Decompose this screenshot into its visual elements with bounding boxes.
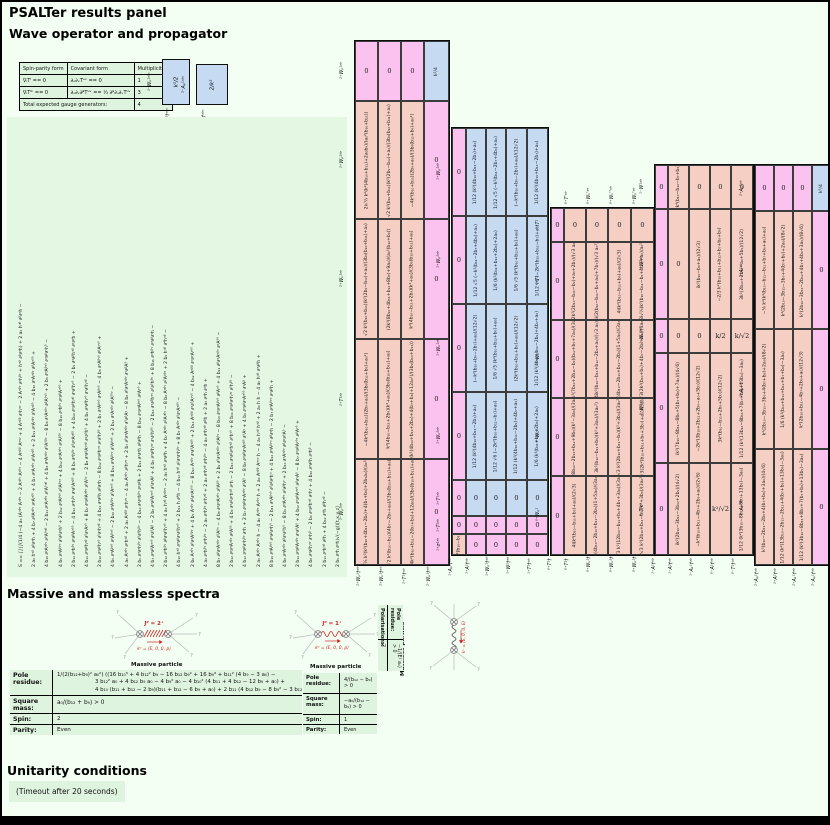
action-term-column: 2 b₁₁ ∂ᵅhᵅᵝ ∂ᵝh + 4 b₁₂ ∂ᵅh ∂ᵝhᵅᵝ − [323, 491, 328, 567]
matrix-row-label: ²⁺Wₖ¹ᵃᵇ [340, 270, 346, 287]
matrix-cell: 0 [689, 319, 710, 353]
parity-row: Parity: Even [303, 724, 377, 734]
matrix-cell: √2 k²(b₁₀+b₁₁)(k²(2b₉−b₁₂)+a₀)/(3b₉(b₁₀+… [378, 101, 401, 219]
matrix-cell: 0 [710, 165, 731, 209]
matrix-cell: 3k²(b₁₀−b₁₁+2b₉+5b₇)/(12√2) [710, 353, 731, 463]
matrix-cell-value: 1/12 √5 (−k²(b₁₁−2b₇+4b₉)+a₀) [494, 136, 499, 209]
matrix-row-label: ¹⁺Wₖ¹ᵃᵇ [437, 339, 443, 356]
matrix-cell: 8i√⅔(k²(b₁₀−b₁₁−b₉+4b₇)+a₀)/a₀² [631, 242, 654, 320]
matrix-cell-value: 1/6 (k²(b₁₀+b₁₁+b₁₂+b₇+b₈)−3a₀) [781, 351, 786, 428]
momentum-arrow [325, 640, 340, 643]
matrix-col-label: ⁰⁺Wₖ²† [610, 556, 616, 572]
matrix-row-label: ⁰⁺T¹ [536, 220, 542, 229]
matrix-cell: 0 [668, 319, 689, 353]
matrix-cell: k²(4b₁₀−2b₁₁+b₁₂−2b₉)(1+5a₀)/(3a₀²) [608, 320, 631, 398]
massive2-spectrum-table: Pole residue: 4/(b₁₂ − b₉) > 0 Square ma… [303, 673, 377, 734]
matrix-cell: k²(4b₁₀−2b₁₁+b₁₂−2b₉)(1+5a₀)/(3a₀²) [586, 476, 608, 555]
mini-matrix-value: k²/2 [173, 77, 179, 88]
matrix-cell-value: 0 [514, 541, 518, 549]
matrix-cell-value: 1/6 (k²(b₁₁+b₁₂+2b₉)+2a₀) [494, 230, 499, 291]
gauge-covariant-form: ∂ᵤ∂ᵥ∂ᵝTᵘᵛ == ⅓ ∂ᵝ∂ᵤ∂ᵥTᵘᵛ [67, 87, 134, 99]
momentum-label: kᵘ = (E, 0, 0, p) [137, 646, 171, 652]
matrix-cell-value: 0 [474, 494, 478, 502]
matrix-cell: (k²(4b₁₀+b₁₁+2b₉)+4(b₇+b₈)+12a₀²)/(3b₉(b… [401, 339, 424, 459]
matrix-cell-value: 0 [573, 221, 577, 229]
matrix-cell-value: ik²(2b₁₀−3b₁₁−3b₁₂+2b₉)/(4√2) [676, 473, 681, 544]
action-term-column: 2 b₁₀ ∂ᵅ∂ᵝhᵞᵟ ∂ᵟ∂ᵞhᵅᵝ + 4 b₁₁ ∂ᵅ∂ᵝh ∂ᵝ∂ᵅ… [98, 336, 103, 567]
svg-text:?: ? [373, 613, 376, 619]
matrix-cell-value: k²/4 [819, 184, 824, 193]
gauge-spin-parity-form: ∇ᵢTⁱ == 0 [20, 75, 68, 87]
matrix-row-label: ¹⁻W¹ᵃᵇ [640, 178, 646, 193]
matrix-cell: 0 [668, 209, 689, 319]
parity-value: Even [52, 725, 302, 735]
matrix-cell-value: 0 [676, 332, 680, 340]
timeout-message: (Timeout after 20 seconds) [9, 781, 125, 802]
matrix-cell: 4(2k²(2b₁₀−b₁₁−b₉)+a₀+2b₇)/(√3 a₀²) [564, 242, 586, 320]
mini-matrix-cell: 2/k² [196, 64, 228, 105]
matrix-cell: 0 [551, 208, 564, 242]
matrix-cell-value: 0 [494, 521, 498, 529]
matrix-cell-value: 2i√⅔ k²(k²(4b₁₀+b₁₁)+2a₀b₉)/(a₀²(b₁₀+b₁₁… [364, 111, 369, 209]
matrix-cell: 0 [551, 242, 564, 320]
matrix-cell-value: 0 [457, 521, 461, 529]
matrix-cell: 1/12 (k²(4b₁₀+b₁₁−2b₇)+a₀) [527, 128, 548, 216]
matrix-cell-value: 0 [474, 541, 478, 549]
matrix-cell-value: 3k²(b₁₀−b₁₁+2b₉+5b₇)/(12√2) [718, 374, 723, 442]
matrix-cell-value: 0 [659, 505, 663, 513]
vertex-icon [137, 631, 172, 638]
spin-label: Spin: [10, 714, 52, 724]
gauge-header-spin-parity: Spin-parity form [20, 63, 68, 75]
action-term-column: 4 b₁₁ ∂ᵅ∂ᵝhᵅᵝ ∂ᵟ∂ᵞAᵞᵟ + 8 b₇ ∂ᵅ∂ᵝAᵅᵝᵞ ∂ᵟ… [85, 374, 90, 567]
matrix-cell: 0 [506, 534, 527, 555]
matrix-cell-value: 1/12 (k²(4b₁₀+b₁₁−2b₉)+4b₇+a₀) [514, 399, 519, 474]
matrix-col-label: ¹⁻Aₖ¹†ᵃᵇ [690, 558, 696, 576]
feynman-diagram-massless: ???? kᵘ = (E, 0, 0, E) [426, 600, 484, 676]
matrix-cell-value: 0 [718, 183, 722, 191]
matrix-row-label: ²⁺T¹ᵃᵇ [340, 392, 346, 405]
matrix-cell-value: 0 [535, 521, 539, 529]
matrix-cell: 0 [689, 165, 710, 209]
matrix-col-label: ⁰⁺T¹† [548, 558, 554, 570]
matrix-cell: 1/4 (k²(b₁₀−b₁₁)+a₀) [452, 534, 466, 555]
matrix-cell: √2 k²(b₁₀−b₁₁)(4b₇−2b₉+a₀)/(3b₉(b₁₀+b₁₁)… [378, 459, 401, 565]
matrix-cell-value: 1/12 (k²(3b₁₀−8b₁₁+8b₇+7(b₇+b₈)+13b₉)−3a… [800, 453, 805, 560]
matrix-cell-value: 0 [514, 521, 518, 529]
matrix-cell: 0 [655, 209, 668, 319]
matrix-cell: 1/6 (k²(b₁₀+b₁₁+b₁₂+b₇+b₈)−3a₀) [774, 329, 793, 449]
matrix-cell-value: 0 [457, 432, 461, 440]
action-term-column: 4 b₇ ∂ᵅ∂ᵝAᵅᵞᵟ ∂ᵞ∂ᵟAᵝ − 2 b₈ ∂ᵅ∂ᵝAᵅᵞᵟ ∂ᵟ∂… [151, 325, 156, 567]
matrix-cell: 0 [452, 480, 466, 516]
matrix-cell-value: k²(2b₁₀−3b₁₁−3b₉+4(b₇+b₈)+2a₀)/(8√2) [781, 224, 786, 316]
matrix-col-label: ⁰⁺Wₚ¹† [633, 556, 639, 572]
square-mass-value: −a₀/(b₁₂ − b₉) > 0 [339, 694, 377, 714]
matrix-cell: (2k²(b₁₀+b₁₁+b₉)+a₀)/(12√2) [506, 304, 527, 392]
action-term-column: 4 b₉ ∂ᵅAᵝᵞᵟ ∂ᵞAᵝᵅᵟ − 2 b₁₀ ∂ᵅAᵝᵝᵞ ∂ᵟAᵅᵞᵟ… [111, 386, 116, 567]
matrix-cell: 1/12 √6 (−2k²(b₁₀+b₁₂−b₇)+a₀) [527, 216, 548, 304]
matrix-cell: 0 [424, 219, 449, 339]
mini-matrix-row-label: ²⁻Wₚ¹ᵃᵇᶜ [148, 72, 154, 91]
matrix-cell-value: 0 [494, 541, 498, 549]
matrix-cell-value: 0 [434, 275, 438, 283]
svg-text:?: ? [111, 635, 114, 641]
action-term-column: 2 b₁₂ ∂ᵅhᵝᵞ ∂ᵝ∂ᵞ∂ᵟhᵅᵟ + 4 a₀ hᵅᵝ Aᵅᵝᵞᵞ −… [164, 329, 169, 567]
action-term-column: 4 b₈ ∂ᵅAᵅᵝᵞ ∂ᵝ∂ᵞ∂ᵟhᵟ − 8 b₉ ∂ᵅAᵅᵝᵞ ∂²∂ᵝh… [283, 424, 288, 567]
matrix-cell: 1/6 (k²(b₁₁+b₁₂+2b₉)+2a₀) [486, 216, 506, 304]
matrix-cell-value: 1/12 (k²(4b₁₀+b₁₁−2b₇)+a₀) [474, 140, 479, 203]
matrix-row-label: ⁰⁻W¹ᵃᵇ [640, 399, 646, 414]
matrix-col-label: ¹⁺Aₚ¹†ᵃᵇ [449, 558, 455, 576]
matrix-cell: √2 k²(b₁₀+b₁₁)(k²(2b₉−b₁₂)+a₀)/(3b₉(b₁₀+… [355, 219, 378, 339]
matrix-cell: 0 [466, 480, 486, 516]
matrix-cell-value: 1/12 (k²(4b₁₀+b₁₁−2b₇)+a₀) [474, 404, 479, 467]
spin-value: 1 [339, 715, 377, 724]
svg-text:?: ? [477, 602, 480, 608]
pole-residue-row: Pole residue: −1/(E² a₀) > 0 [388, 605, 403, 671]
matrix-cell-value: (k²(4b₁₀+b₁₁+2b₉)+4(b₇+b₈)+12a₀²)/(3b₉(b… [410, 341, 415, 458]
propagator-hatch [144, 630, 166, 637]
matrix-cell-value: 4i(k²(b₁₀−b₁₁+b₉)+a₀)/(2√3) [617, 249, 622, 313]
matrix-cell: −2/3 k²(b₁₀+b₁₁+b₁₂+b₇+b₈+b₉) [710, 209, 731, 319]
matrix-cell: 2√3 k²(2b₁₀+b₁₁−b₉)(k²+3b₉)/(3a₀²) [608, 398, 631, 476]
svg-text:?: ? [289, 635, 292, 641]
matrix-cell-value: 1/12 √6 (−2k²(b₁₀+b₁₂−b₇)+a₀) [494, 400, 499, 472]
matrix-cell-value: 0 [457, 256, 461, 264]
massive1-spectrum-table: Pole residue: 1/(2(b₁₂+b₉)² a₀²) ((16 b₁… [10, 670, 302, 735]
matrix-col-label: ¹⁻A¹†ᵃᵇ [652, 558, 658, 574]
matrix-row-label: ¹⁺T¹ᵃᵇ [437, 491, 443, 504]
matrix-cell: 0 [466, 534, 486, 555]
matrix-block-c: 01/12 (k²(4b₁₀+b₁₁−2b₇)+a₀)1/12 √5 (−k²(… [451, 127, 549, 556]
action-term-column: 2 a₀ Aᵅᵝᵞ Aᵅᵝᵞ h − 4 a₀ Aᵅᵝᵞ Aᵞᵝᵅ h + 2 … [257, 355, 262, 567]
matrix-col-top-label: ⁰⁺Wₖ''ᵃᵇ [610, 186, 616, 204]
parity-value: Even [339, 725, 377, 734]
matrix-col-top-label: ⁰⁺Wₚ'ᵃᵇ [633, 187, 639, 204]
pole-residue-label: Pole residue: [10, 670, 52, 695]
matrix-cell: 0 [452, 516, 466, 534]
matrix-cell: 0 [551, 476, 564, 555]
massless-spectrum-table: Pole residue: −1/(E² a₀) > 0 Polarisatio… [378, 605, 403, 671]
action-term-column: 8 b₁₀ ∂ᵅAᵝᵞᵟ ∂ᵅ∂ᵝ∂ᵞhᵟ − 2 b₁₁ ∂ᵅAᵝᵞᵟ ∂ᵟ∂… [270, 380, 275, 567]
matrix-cell-value: k²/√2 [712, 505, 729, 513]
matrix-cell: 0 [452, 216, 466, 304]
matrix-block-e: 01/4 (−2k⁴(b₁₀−b₁₁−b₇+b₈)+k²a₀)00000ik²(… [654, 164, 754, 556]
svg-text:?: ? [429, 666, 432, 672]
matrix-cell: k²/4 [424, 41, 449, 101]
matrix-cell-value: k²(2b₁₀−3b₁₁−3b₉+4(b₇+b₈)+2a₀)/(8√2) [762, 343, 767, 435]
matrix-cell: 0 [631, 208, 654, 242]
matrix-cell-value: 0 [659, 260, 663, 268]
matrix-row-label: ¹⁺Wₚ²ᵃᵇ [437, 251, 443, 268]
svg-text:?: ? [198, 632, 201, 638]
matrix-cell-value: k²(4b₁₀−2b₁₁+b₁₂−2b₉)(1+5a₀)/(3a₀²) [617, 320, 622, 398]
matrix-cell: 1/12 √5 (−k²(b₁₁−2b₇+4b₉)+a₀) [486, 128, 506, 216]
matrix-cell: 0 [551, 398, 564, 476]
matrix-cell: k²(2b₁₀−3b₁₁−2b₁₂+4b₇+4b₉+3a₀)/(8√6) [793, 211, 812, 329]
parity-label: Parity: [10, 725, 52, 735]
matrix-cell-value: 1/12 (k²(4b₁₀+b₁₁−2b₉)+4b₇+a₀) [535, 311, 540, 386]
matrix-col-label: ⁰⁻A¹†ᵃᵇ [711, 558, 717, 574]
matrix-cell-value: k²(4b₁₀−2b₁₁+b₁₂−2b₉)(1+5a₀)/(3a₀²) [595, 476, 600, 555]
matrix-cell-value: 0 [819, 385, 823, 393]
matrix-cell: −k²(b₁₀+b₁₁−4b₇+2b₉+a₀)/(2√6) [689, 463, 710, 555]
matrix-cell-value: 0 [697, 332, 701, 340]
matrix-cell-value: 3k²(b₁₀−b₁₁+b₉)(k²+3a₀)/(3a₀²) [595, 402, 600, 473]
matrix-cell-value: 0 [457, 494, 461, 502]
matrix-cell: 1/6 √5 (k²(b₁₀+b₁₂+b₉)+a₀) [506, 216, 527, 304]
svg-text:?: ? [294, 610, 297, 616]
parity-label: Parity: [303, 725, 339, 734]
matrix-cell: 4i(k²(b₁₀−b₁₁+b₉)+a₀)/(2√3) [564, 476, 586, 555]
matrix-col-top-label: ⁰⁺T'ᵃᵇ [565, 191, 571, 204]
feynman-diagram-massive-1: ??? ??? Jᴾ = 2⁺ kᵘ = (E, 0, 0, p) [110, 608, 202, 660]
matrix-cell-value: 0 [410, 67, 414, 75]
matrix-cell-value: 1/12 (k²(13b₁₀−8b₁₁+7(b₇+b₈)+13b₉)−3a₀) [740, 359, 745, 458]
action-term-column: S == ∫∫∫∫(1/4 (−4 a₀ (Aᵅᵝᵞ Aᵅᵝᵞ − 2 Aᵅᵝᵞ… [19, 303, 24, 567]
action-term-column: 2 b₈ Aᵅᵝᵞ ∂ᵟ∂ᵅAᵟᵝᵞ + 4 b₉ Aᵅᵝᵞ ∂ᵝ∂ᵅAᵞᵟᵟ … [191, 342, 196, 567]
matrix-cell: 0 [466, 516, 486, 534]
momentum-label: kᵘ = (E, 0, 0, E) [461, 621, 466, 654]
matrix-cell-value: 0 [800, 184, 804, 192]
matrix-cell: (−k²(b₁₀+b₉−2b₇)+a₀)/(12√2) [466, 304, 486, 392]
matrix-cell: −⅛ k²(k²(b₁₀−b₁₁−b₁₂+b₇+b₈+a₀)+a₀) [755, 211, 774, 329]
matrix-cell: ik²(7b₁₀−8b₁₁−8b₉+5(b₇+b₈)+7a₀)/(4√6) [668, 353, 689, 463]
mini-matrix-value: 2/k² [209, 79, 215, 90]
matrix-col-label: ²⁺Wₖ¹†ᵃᵇ [380, 567, 386, 587]
matrix-row-label: ²⁺Aₚ¹ᵃᵇ [740, 180, 746, 196]
matrix-cell: 1/6 √5 (k²(b₁₀+b₁₂+b₉)+a₀) [486, 304, 506, 392]
svg-text:?: ? [195, 613, 198, 619]
matrix-cell-value: 0 [819, 503, 823, 511]
matrix-cell: 1/12 √5 (−k²(b₁₁−2b₇+4b₉)+a₀) [466, 216, 486, 304]
matrix-col-label: ²⁺Aₖ¹†ᵃᵇ [793, 568, 799, 586]
matrix-cell-value: 0 [659, 404, 663, 412]
matrix-cell-value: 4i(k²(b₁₀−b₁₁+b₉)+a₀)/(2√3) [573, 484, 578, 548]
matrix-row-label: ⁰⁺Wₖ² [536, 429, 542, 442]
matrix-col-label: ²⁺Aₚ¹†ᵃᵇ [755, 568, 761, 586]
pole-residue-label: Pole residue: [388, 605, 403, 639]
matrix-cell: k²/√2 [710, 463, 731, 555]
feynman-diagram-massive-2: ??? ??? Jᴾ = 1⁺ kᵘ = (E, 0, 0, p) [288, 608, 380, 660]
matrix-cell: 0 [486, 480, 506, 516]
gauge-covariant-form: ∂ᵤ∂ᵥTᵘᵛ == 0 [67, 75, 134, 87]
action-term-column: 4 b₁₀ ∂ᵞAᵅᵝᵞ ∂ᵟAᵟᵅᵝ − 2 b₁₁ ∂ᵞAᵅᵝᵞ ∂ᵟAᵟᵅ… [45, 339, 50, 567]
matrix-cell-value: 0 [457, 344, 461, 352]
matrix-cell: k²(2b₁₀−3b₁₁−3b₉+4(b₇+b₈)+2a₀)/(8√2) [774, 211, 793, 329]
action-term-column: 4 a₀ ∂ᵅhᵝᵞ ∂ᵅhᵝᵞ − 2 a₀ ∂ᵅhᵝᵞ ∂ᵞhᵅᵝ + 2 … [204, 378, 209, 567]
pole-residue-value: −1/(E² a₀) > 0 [388, 639, 403, 671]
page-title: PSALTer results panel [9, 6, 167, 21]
matrix-cell: ik²(2b₁₀−3b₁₁−3b₁₂+2b₉)/(4√2) [668, 463, 689, 555]
matrix-cell-value: 1/12 √5 (−k²(b₁₁−2b₇+4b₉)+a₀) [474, 224, 479, 297]
matrix-cell: k²(8b₁₀−2b₁₁+b₁₂+9b₉)(k²−3a₀)/(3a₀²) [564, 398, 586, 476]
matrix-cell: 2i√⅔ k²(k²(4b₁₀+b₁₁)+2a₀b₉)/(a₀²(b₁₀+b₁₁… [355, 101, 378, 219]
matrix-cell-value: k²(b₁₀−2b₁₁−2b₉+4(b₇+b₈)+3a₀)/(4√6) [762, 463, 767, 552]
svg-text:?: ? [123, 655, 126, 660]
matrix-cell: 0 [812, 329, 830, 449]
matrix-col-label: ²⁺Wₚ¹†ᵃᵇ [357, 567, 363, 587]
square-mass-value: a₀/(b₁₂ + b₉) > 0 [52, 696, 302, 713]
leg-question-marks: ??? ??? [289, 610, 379, 660]
matrix-cell-value: k²/4 [434, 67, 439, 76]
matrix-cell-value: 0 [364, 67, 368, 75]
matrix-cell-value: 4(2k²(2b₁₀−b₁₁−b₉)+a₀+2b₇)/(√3 a₀²) [573, 242, 578, 320]
matrix-cell: k²(2b₁₀+b₁₁−4b₇+2b₉+a₀)/(12√3) [793, 329, 812, 449]
matrix-cell: (−k²(b₁₀+b₉−2b₇)+a₀)/(12√2) [506, 128, 527, 216]
matrix-cell: 0 [755, 165, 774, 211]
matrix-cell: 0 [424, 101, 449, 219]
matrix-cell-value: 0 [762, 184, 766, 192]
matrix-cell-value: 2i√⅙ k²(k²(b₁₀+4b₁₁−2b₉)+4(b₇+b₈)+2b₉a₀)… [364, 459, 369, 565]
matrix-cell-value: 0 [434, 508, 438, 516]
action-term-column: 4 b₉ ∂ᵅAᵝᵞᵅ ∂ᵟ∂ᵝ∂ᵞhᵟ + 2 b₁₂ ∂ᵅAᵝᵞᵟ ∂ᵟAᵝ… [59, 379, 64, 567]
matrix-col-label: ²⁺T¹†ᵃᵇ [403, 568, 409, 584]
matrix-cell-value: −4k²(b₁₀+b₁₁−2(b₇+b₈)+12a₀)/(3b₉(b₁₀+b₁₁… [410, 459, 415, 565]
svg-text:?: ? [368, 653, 371, 659]
matrix-cell: k²(4b₁₀−b₁₁+2b₉)(k²+a₀)/(3b₉(b₁₀+b₁₁)+a₀… [401, 219, 424, 339]
polarisations-row: Polarisations: 2 [378, 605, 388, 671]
matrix-cell-value: k²(2b₁₀−3b₁₁−2b₁₂+4b₇+4b₉+3a₀)/(8√6) [800, 224, 805, 317]
matrix-cell: 0 [486, 516, 506, 534]
matrix-cell-value: 0 [514, 494, 518, 502]
matrix-cell-value: −⅛ k²(k²(b₁₀−b₁₁−b₁₂+b₇+b₈+a₀)+a₀) [762, 226, 767, 314]
matrix-cell-value: 0 [697, 183, 701, 191]
polarisations-label: Polarisations: [378, 605, 387, 639]
matrix-cell: −2k²(7b₁₀+2b₁₁−b₉)(b₁₂+b₉+7a₀)/(3a₀²) [564, 320, 586, 398]
matrix-cell-value: 8i√⅔(k²(b₁₀−b₁₁−b₉+4b₇)+a₀)/a₀² [640, 243, 645, 320]
matrix-cell-value: √2 k²(b₁₀+b₁₁)(k²(2b₉−b₁₂)+a₀)/(3b₉(b₁₀+… [387, 104, 392, 217]
matrix-cell-value: 0 [535, 541, 539, 549]
matrix-row-label: ⁰⁺Wₖ¹ [536, 351, 542, 364]
matrix-cell: 1/12 (k²(4b₁₀+b₁₁−2b₉)+4b₇+a₀) [527, 304, 548, 392]
matrix-col-label: ⁰⁻T¹†ᵃᵇ [732, 558, 738, 574]
matrix-cell: 1/12 (k²(13b₁₀−2b₁₁−2b₁₂+4(b₇+b₈)+13b₉)−… [774, 449, 793, 565]
matrix-cell-value: 0 [474, 521, 478, 529]
matrix-col-label: ¹⁺A¹†ᵃᵇ [466, 558, 472, 574]
matrix-cell-value: 0 [555, 512, 559, 520]
matrix-cell: 0 [608, 208, 631, 242]
spin-row: Spin: 1 [303, 714, 377, 724]
matrix-col-label: ⁰⁺T²† [565, 558, 571, 570]
matrix-cell-value: k/√2 [735, 332, 749, 340]
matrix-cell-value: 0 [387, 67, 391, 75]
matrix-cell-value: 1/6 √5 (k²(b₁₀+b₁₂+b₉)+a₀) [514, 229, 519, 291]
matrix-cell-value: 0 [659, 332, 663, 340]
diagram-caption: Massive particle [131, 662, 182, 668]
action-term-column: 4 a₀ Aᵅᵝᵞ ∂ᵞhᵅᵝ + 2 a₀ Aᵅᵝᵝ ∂ᵞhᵅᵞ − 4 a₀… [125, 356, 130, 567]
matrix-cell-value: −2k²(7b₁₀+2b₁₁−b₉)(b₁₂+b₉+7a₀)/(3a₀²) [573, 320, 578, 398]
matrix-cell: 0 [655, 463, 668, 555]
matrix-cell-value: 0 [781, 184, 785, 192]
matrix-cell: 0 [564, 208, 586, 242]
matrix-row-label: ¹⁻W²ᵃᵇ [640, 255, 646, 270]
jp-label: Jᴾ = 2⁺ [143, 620, 164, 627]
matrix-cell-value: k²(4b₁₀−b₁₁+2b₉)(k²+a₀)/(3b₉(b₁₀+b₁₁)+a₀… [387, 350, 392, 448]
matrix-row-label: ⁰⁺T² [536, 276, 542, 285]
matrix-cell-value: k²(8b₁₀−2b₁₁+b₁₂+9b₉)(k²−3a₀)/(3a₀²) [573, 398, 578, 476]
matrix-cell-value: ik²(7b₁₀−8b₁₁−8b₉+5(b₇+b₈)+7a₀)/(4√6) [676, 362, 681, 455]
matrix-row-label: ²⁻Aₚ¹ᵃᵇ [740, 499, 746, 515]
spin-value: 2 [52, 714, 302, 724]
matrix-cell-value: (−k²(b₁₀+b₉−2b₇)+a₀)/(12√2) [474, 314, 479, 382]
matrix-cell: (2k²(8b₁₀+4b₁₁+b₁₂+8b₉)+9a₀)/(a₀²(b₁₀+b₉… [378, 219, 401, 339]
momentum-arrow [147, 641, 162, 644]
matrix-cell-value: 0 [434, 395, 438, 403]
matrix-cell: 3k²(b₁₀−b₁₁+b₉)(k²+3a₀)/(3a₀²) [586, 398, 608, 476]
matrix-cell: k/√2 [731, 319, 753, 353]
matrix-cell-value: √2 k²(b₁₀+b₁₁)(k²(2b₉−b₁₂)+a₀)/(3b₉(b₁₀+… [364, 223, 369, 336]
matrix-cell: ik²(b₁₀−b₉+a₀)/(2√3) [689, 209, 710, 319]
matrix-row-label: ¹⁺T²ᵃᵇ [437, 518, 443, 531]
matrix-cell: −4k²(b₁₀+b₁₁)(2b₉+a₀)/(3b₉(b₁₂+b₉)+a₀²) [355, 339, 378, 459]
gauge-spin-parity-form: ∇ᵢTⁱᵏ == 0 [20, 87, 68, 99]
matrix-cell: 0 [355, 41, 378, 101]
pole-residue-row: Pole residue: 4/(b₁₂ − b₉) > 0 [303, 673, 377, 693]
matrix-cell-value: 1/12 √6 (−2k²(b₁₀+b₁₂−b₇)+a₀) [535, 224, 540, 296]
matrix-row-label: ²⁺Aₖ¹ᵃᵇ [740, 381, 746, 397]
matrix-cell-value: 4ik²(b₁₀−b₁₁+b₁₂−2b₉+a₀)/(√3 a₀) [595, 321, 600, 398]
action-term-column: 4 b₁₀ hᵅᵝ ∂ᵅ∂ᵝ∂ᵞ∂ᵟhᵞᵟ + 2 b₁₁ h ∂⁴h − 4 … [177, 397, 182, 567]
matrix-cell: 0 [506, 480, 527, 516]
matrix-col-label: ¹⁻A²†ᵃᵇ [669, 558, 675, 574]
matrix-cell: 0 [506, 516, 527, 534]
psalter-results-panel: PSALTer results panel Wave operator and … [0, 0, 830, 825]
matrix-cell: 1/12 (k²(13b₁₀−8b₁₁+7(b₇+b₈)+13b₉)−3a₀) [731, 353, 753, 463]
matrix-col-label: ¹⁺W¹†ᵃᵇ [507, 557, 513, 574]
matrix-cell-value: 1/12 (k²(4b₁₀+b₁₁−2b₇)+a₀) [535, 140, 540, 203]
action-term-column: 4 b₁₂ ∂ᵅ∂ᵝ∂ᵞhᵝᵞ ∂ᵅh + 2 b₇ ∂ᵅ∂ᵝ∂ᵞAᵅᵝᵞ ∂ᵟ… [243, 375, 248, 567]
matrix-cell-value: 0 [535, 494, 539, 502]
jp-label: Jᴾ = 1⁺ [321, 620, 342, 627]
action-term-column: 2 b₁₁ ∂ᵅhᵝᵞ ∂ᵞ∂ᵝAᵅᵟᵟ − 4 b₁₂ ∂ᵅhᵝᵞ ∂ᵞ∂ᵟA… [72, 330, 77, 567]
action-term-column: 8 b₇ ∂ᵝ∂ᵅAᵅᵝᵞ ∂ᵟAᵟᵞ − 4 b₈ ∂ᵞ∂ᵅAᵅᵝᵞ ∂ᵟAᵝ… [217, 332, 222, 567]
matrix-cell: 4i(k²(b₁₀−b₁₁+b₉)+a₀)/(2√3) [608, 242, 631, 320]
matrix-cell: 0 [486, 534, 506, 555]
matrix-row-label: ²⁺Wₚ²ᵃᵇ [340, 151, 346, 168]
svg-text:?: ? [477, 667, 480, 673]
gauge-total-label: Total expected gauge generators: [20, 99, 135, 111]
action-term-column: 2 b₁₂ ∂ᵞ∂ᵅAᵅᵝᵞ ∂ᵝAᵟᵟ + 4 b₉ ∂ᵅ∂ᵝ∂ᵞhᵅᵝ ∂ᵞ… [230, 374, 235, 567]
matrix-row-label: ⁰⁻T¹ᵃᵇ [640, 502, 646, 515]
matrix-cell: 0 [586, 208, 608, 242]
matrix-cell-value: 0 [555, 221, 559, 229]
matrix-cell: 0 [655, 319, 668, 353]
matrix-cell-value: −k²(b₁₀+b₁₁−4b₇+2b₉+a₀)/(2√6) [697, 472, 702, 546]
matrix-cell: 0 [793, 165, 812, 211]
matrix-cell: 0 [551, 320, 564, 398]
matrix-cell-value: 0 [617, 221, 621, 229]
matrix-col-label: ¹⁺T¹†ᵃᵇ [528, 558, 534, 574]
matrix-cell-value: −2/3 k²(b₁₀+b₁₁+b₁₂+b₇+b₈+b₉) [718, 227, 723, 301]
matrix-cell: 0 [812, 449, 830, 565]
polarisations-value: 2 [378, 639, 387, 671]
square-mass-label: Square mass: [10, 696, 52, 713]
matrix-row-label: ⁰⁺Wₚ¹ [536, 508, 542, 521]
matrix-cell: 1/12 √6 (−2k²(b₁₀+b₁₂−b₇)+a₀) [486, 392, 506, 480]
matrix-cell-value: k²(4b₁₀−b₁₁+2b₉)(k²+a₀)/(3b₉(b₁₀+b₁₁)+a₀… [410, 230, 415, 328]
matrix-cell-value: (2k²(b₁₀+b₁₁+b₉)+a₀)/(12√2) [514, 315, 519, 381]
matrix-col-label: ¹⁺Wₚ¹†ᵃᵇ [486, 557, 492, 577]
matrix-col-top-label: ⁰⁺Wₖ'ᵃᵇ [587, 188, 593, 205]
matrix-cell: 0 [452, 392, 466, 480]
matrix-row-label: ²⁺Wₚ¹ᵃᵇ [340, 62, 346, 79]
matrix-cell-value: 1/6 √5 (k²(b₁₀+b₁₂+b₉)+a₀) [494, 317, 499, 379]
momentum-label: kᵘ = (E, 0, 0, p) [315, 645, 349, 651]
matrix-cell-value: 0 [819, 266, 823, 274]
svg-text:?: ? [116, 610, 119, 616]
